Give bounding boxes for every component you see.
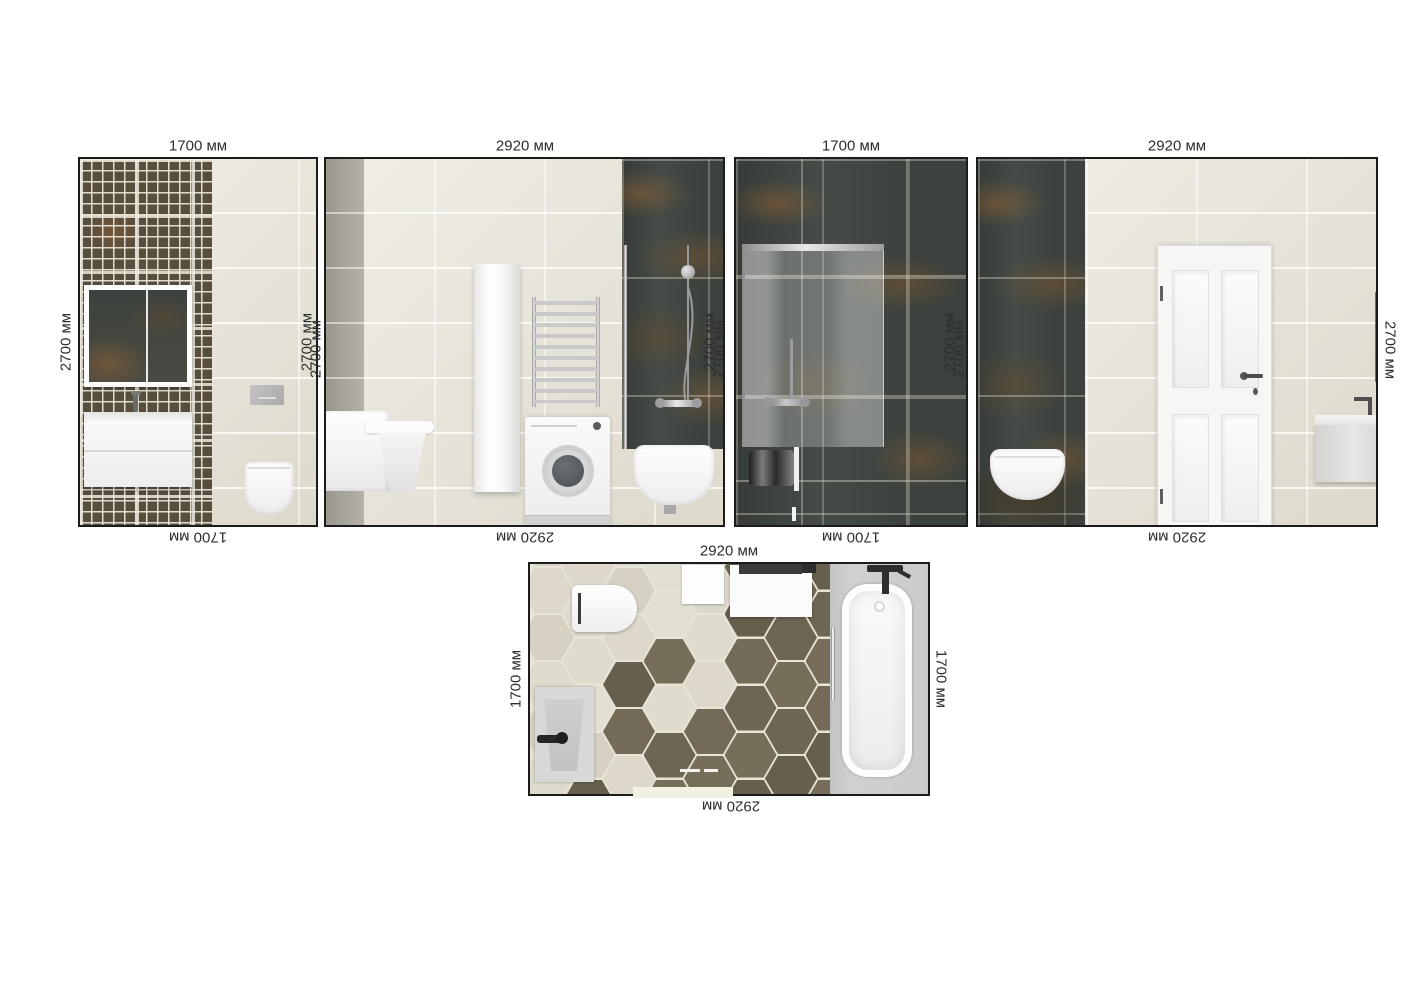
floor-hex-tile-light [644, 686, 696, 731]
floor-bathtub-plan [842, 584, 912, 777]
bathroom-design-sheet: 1700 мм 2920 мм 1700 мм 2920 мм 1700 мм … [0, 0, 1414, 1000]
dim-wall2-width-bottom: 2920 мм [496, 529, 554, 546]
floor-hex-tile-dark [603, 662, 655, 707]
floor-door-mark-2 [704, 769, 718, 772]
toilet-seat-line [248, 467, 290, 469]
washer-knob [593, 422, 601, 430]
door-panel-ll [1172, 414, 1209, 522]
door [1157, 245, 1272, 527]
floor-cabinet-plan [682, 565, 724, 604]
door-keyhole [1253, 388, 1258, 395]
glass-screen-edge [624, 245, 627, 449]
mirror-reflection [89, 290, 187, 382]
floor-hex-tile-light [684, 662, 736, 707]
door-panel-ul [1172, 270, 1209, 388]
dim-floor-depth-right: 1700 мм [933, 650, 950, 708]
door-panel-lr [1221, 414, 1259, 522]
dim-floor-width-top: 2920 мм [700, 543, 758, 560]
floor-hex-tile-dark [725, 733, 777, 778]
washer-plinth [525, 515, 610, 527]
dim-gap34-height-b: 2700 мм [951, 320, 968, 378]
washer-door-glass [552, 455, 584, 487]
wash-counter [1315, 415, 1378, 425]
mixer-knob-left [655, 398, 665, 408]
shower-handset [681, 265, 695, 279]
basin-faucet [133, 393, 138, 412]
dim-floor-depth-left: 1700 мм [508, 650, 525, 708]
vanity-drawer-line [84, 450, 192, 452]
floor-hex-tile-dark [765, 662, 817, 707]
wall-hung-toilet [245, 462, 293, 514]
floor-counter-strip [739, 564, 802, 574]
glass-screen-top-bar [742, 244, 884, 251]
floor-hex-tile-dark [765, 756, 817, 796]
mixer-knob-a [763, 397, 773, 407]
mirror [84, 285, 192, 387]
tub-apron-strip [794, 447, 799, 491]
floor-tub-faucet-stem [882, 570, 889, 594]
toilet-seat-line-2 [995, 456, 1060, 458]
floor-hex-tile-dark [684, 709, 736, 754]
mixer-knob-b [800, 397, 810, 407]
floor-hex-tile-light [684, 615, 736, 660]
washer-door [542, 445, 594, 497]
flush-plate [250, 385, 284, 405]
bathtub-side-edge [749, 450, 794, 486]
floor-counter-item [802, 564, 816, 573]
door-handle [1242, 374, 1263, 378]
wall-elevation-2 [324, 157, 725, 527]
floor-hex-tile-dark [644, 639, 696, 684]
bathtub-end-view [634, 445, 714, 505]
dim-gap23-height-b: 2700 мм [711, 320, 728, 378]
wash-cabinet [1315, 425, 1378, 482]
wall-elevation-1 [78, 157, 318, 527]
tall-cabinet [474, 264, 520, 492]
washer-display [531, 425, 577, 427]
tall-faucet-spout [1354, 397, 1372, 401]
dim-wall3-width-bottom: 1700 мм [822, 529, 880, 546]
dim-wall1-height-left: 2700 мм [58, 313, 75, 371]
floor-hex-tile-dark [725, 639, 777, 684]
towel-bar-edge [1375, 292, 1378, 382]
dim-wall4-height-right: 2700 мм [1382, 321, 1399, 379]
basin-faucet-spout [131, 391, 141, 395]
dim-wall4-width-top: 2920 мм [1148, 138, 1206, 155]
door-hinge-bottom [1160, 489, 1163, 504]
floor-hex-tile-dark [765, 709, 817, 754]
towel-radiator [532, 297, 600, 407]
door-panel-ur [1221, 270, 1259, 388]
wall-elevation-3 [734, 157, 968, 527]
dim-floor-width-bottom: 2920 мм [702, 798, 760, 815]
mirror-divider [146, 290, 148, 382]
dim-wall3-width-top: 1700 мм [822, 138, 880, 155]
washing-machine [525, 417, 610, 527]
vanity-countertop [84, 412, 192, 421]
floor-glass-screen-line [831, 628, 835, 700]
floor-sink-faucet-knob [556, 732, 568, 744]
floor-toilet-hinge [578, 593, 581, 624]
door-hinge-top [1160, 286, 1163, 301]
bathtub-drain-stub [664, 505, 676, 514]
floor-door-opening [633, 787, 733, 798]
floor-hex-tile-dark [603, 709, 655, 754]
radiator-bars [534, 301, 598, 403]
glass-shower-screen [742, 244, 884, 447]
wall-elevation-4 [976, 157, 1378, 527]
floor-toilet-plan [572, 585, 637, 632]
wall3-grout-v2 [906, 159, 908, 525]
floor-plan [528, 562, 930, 796]
glass-screen-frame [742, 244, 745, 447]
dim-wall4-width-bottom: 2920 мм [1148, 529, 1206, 546]
dim-wall1-width-top: 1700 мм [169, 138, 227, 155]
dim-wall1-width-bottom: 1700 мм [169, 529, 227, 546]
floor-hex-tile-light [563, 639, 615, 684]
toilet-seat-side [366, 421, 434, 433]
floor-tub-drain [874, 601, 885, 612]
floor-hex-tile-dark [765, 615, 817, 660]
floor-door-mark-1 [680, 769, 700, 772]
vanity-cabinet [84, 412, 192, 487]
tub-apron-mark [792, 507, 796, 521]
flush-plate-button [258, 397, 276, 399]
mixer-knob-right [692, 398, 702, 408]
shower-pipe [790, 339, 793, 397]
floor-hex-tile-dark [725, 686, 777, 731]
dim-gap12-height-b: 2700 мм [308, 320, 325, 378]
dim-wall2-width-top: 2920 мм [496, 138, 554, 155]
